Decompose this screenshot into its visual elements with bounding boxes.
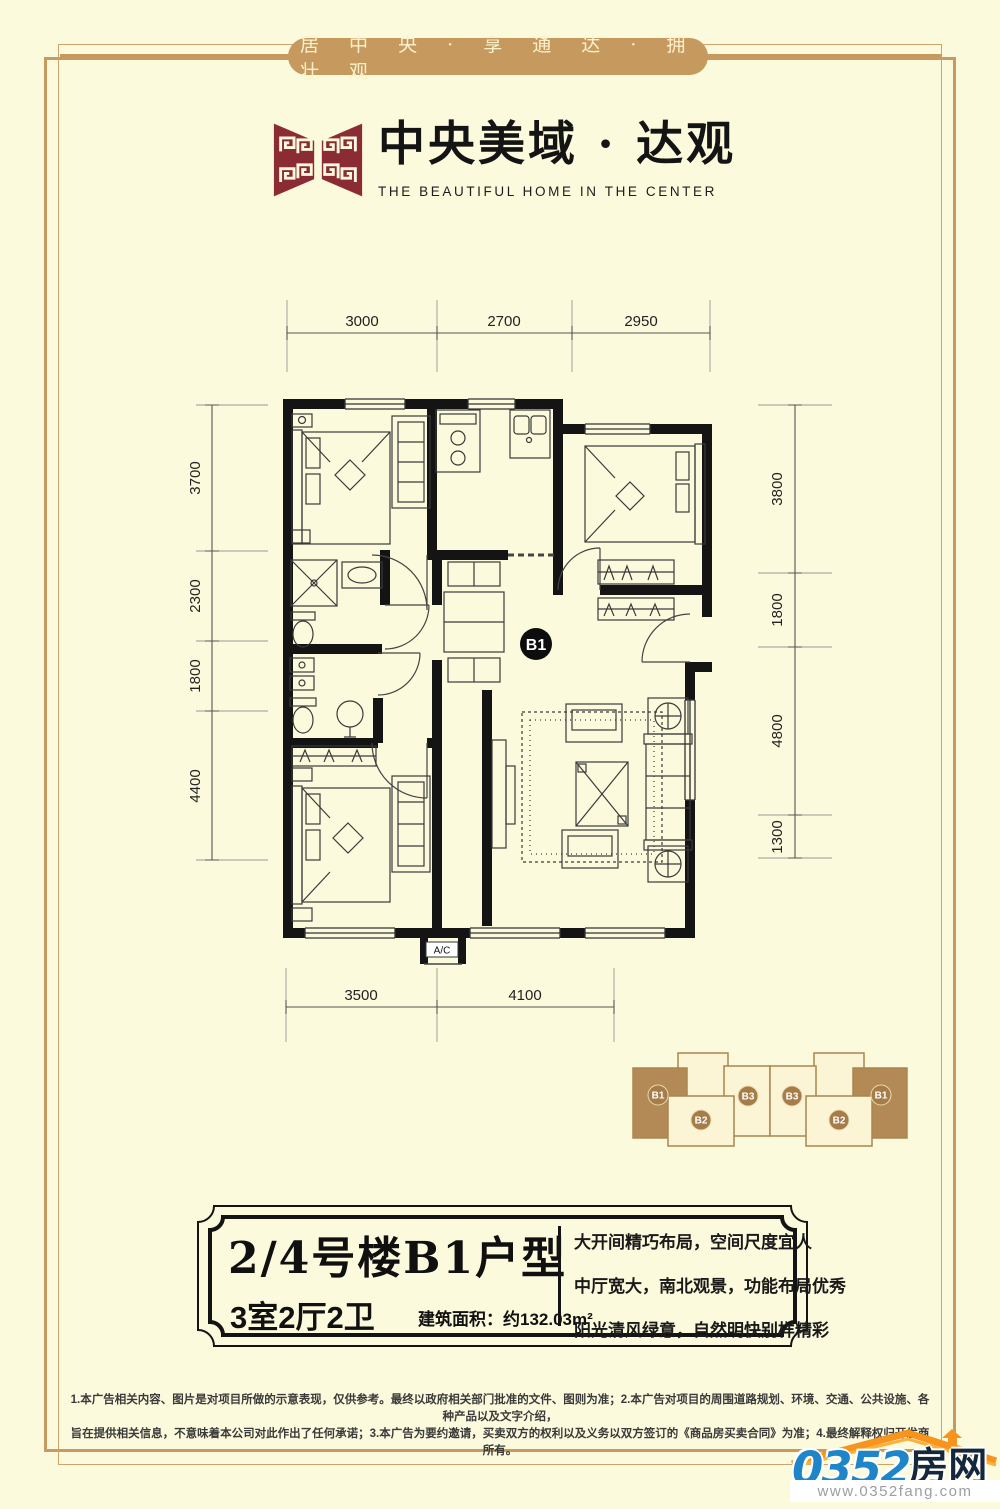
feature-line-1: 大开间精巧布局，空间尺度宜人 [574, 1228, 846, 1253]
plaque-divider [558, 1226, 561, 1326]
bed-master [292, 414, 390, 544]
dimension-lines [205, 326, 802, 1014]
dim-right-4: 1300 [769, 820, 786, 853]
feature-line-2: 中厅宽大，南北观景，功能布局优秀 [574, 1272, 846, 1297]
dining-set [444, 562, 504, 682]
rug-bedroom3 [392, 776, 430, 872]
unit-badge: B1 [520, 628, 552, 660]
wardrobe-hall [292, 746, 376, 766]
dim-bottom-2: 4100 [508, 987, 541, 1004]
key-plan-badge-6: B1 [875, 1091, 888, 1102]
dim-right-2: 1800 [769, 593, 786, 626]
banner-text: 居 中 央 · 享 通 达 · 拥 壮 观 [300, 30, 708, 84]
dim-right-1: 3800 [769, 472, 786, 505]
windows [305, 397, 697, 940]
unit-title: 2/4号楼B1户型 [228, 1222, 567, 1286]
bathroom1-fixtures [291, 560, 382, 647]
brand-logo: 中央美域 · 达观 THE BEAUTIFUL HOME IN THE CENT… [272, 114, 742, 224]
site-logo: 0352房网 www.0352fang.com [790, 1428, 1000, 1502]
living-rug [522, 712, 662, 862]
tv-cabinet [492, 740, 515, 848]
dim-top-3: 2950 [624, 313, 657, 330]
dim-left-2: 2300 [187, 579, 204, 612]
furniture [290, 410, 705, 921]
dim-right-3: 4800 [769, 714, 786, 747]
dim-left-3: 1800 [187, 659, 204, 692]
banner-line-left [60, 54, 290, 57]
feature-line-3: 阳光清风绿意，自然明快别样精彩 [574, 1316, 846, 1341]
site-url[interactable]: www.0352fang.com [790, 1480, 1000, 1502]
ac-label: A/C [434, 946, 451, 957]
unit-area: 建筑面积：约132.03m² [418, 1305, 593, 1330]
key-plan-badge-3: B3 [742, 1092, 755, 1103]
brand-name-en: THE BEAUTIFUL HOME IN THE CENTER [378, 184, 736, 199]
dim-bottom-1: 3500 [344, 987, 377, 1004]
dim-left-4: 4400 [187, 769, 204, 802]
key-plan-badge-1: B1 [652, 1091, 665, 1102]
banner-line-right [706, 54, 942, 57]
brand-mark-icon [272, 114, 364, 206]
dim-top-2: 2700 [487, 313, 520, 330]
poster-page: 居 中 央 · 享 通 达 · 拥 壮 观 中央美域 · 达观 THE BEAU… [0, 0, 1000, 1509]
key-plan-badge-4: B3 [786, 1092, 799, 1103]
feature-list: 大开间精巧布局，空间尺度宜人 中厅宽大，南北观景，功能布局优秀 阳光清风绿意，自… [574, 1228, 846, 1360]
ac-unit: A/C [424, 936, 462, 964]
brand-name-cn: 中央美域 · 达观 [378, 114, 736, 176]
dim-top-1: 3000 [345, 313, 378, 330]
key-plan: B1 B2 B3 B3 B2 B1 [625, 1048, 915, 1152]
key-plan-badge-2: B2 [695, 1116, 708, 1127]
bed-third [292, 768, 390, 921]
rug [392, 416, 430, 508]
area-label: 建筑面积： [418, 1310, 503, 1329]
unit-badge-label: B1 [526, 637, 547, 654]
kitchen-fixtures [436, 410, 550, 472]
dim-left-1: 3700 [187, 461, 204, 494]
top-banner: 居 中 央 · 享 通 达 · 拥 壮 观 [288, 38, 708, 75]
floor-plan: 3000 2700 2950 3700 2300 1800 4400 3800 … [150, 280, 850, 1060]
bathroom2-fixtures [290, 658, 363, 737]
unit-rooms: 3室2厅2卫 [230, 1292, 375, 1337]
bed-second [585, 444, 705, 544]
disclaimer-line-1: 1.本广告相关内容、图片是对项目所做的示意表现，仅供参考。最终以政府相关部门批准… [70, 1392, 930, 1426]
info-plaque: 2/4号楼B1户型 3室2厅2卫 建筑面积：约132.03m² 大开间精巧布局，… [190, 1200, 815, 1352]
key-plan-badge-5: B2 [833, 1116, 846, 1127]
